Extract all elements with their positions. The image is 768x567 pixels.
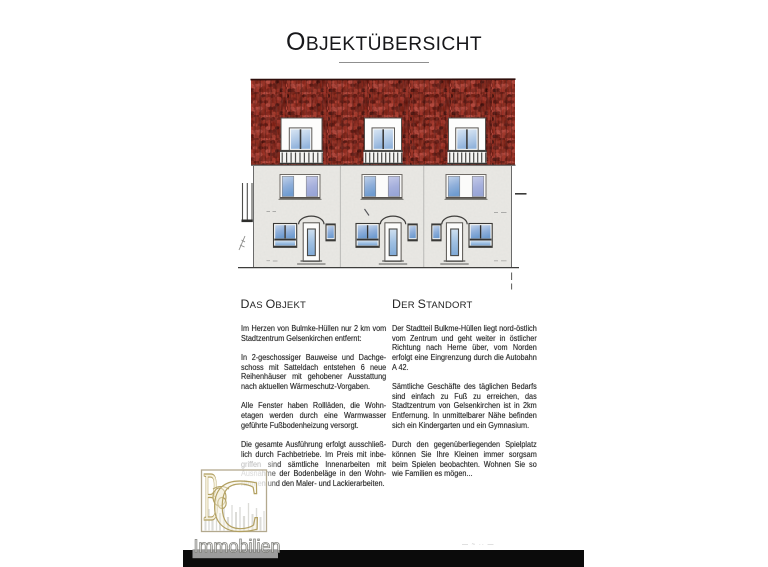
svg-text:Immobilien: Immobilien bbox=[194, 536, 281, 556]
